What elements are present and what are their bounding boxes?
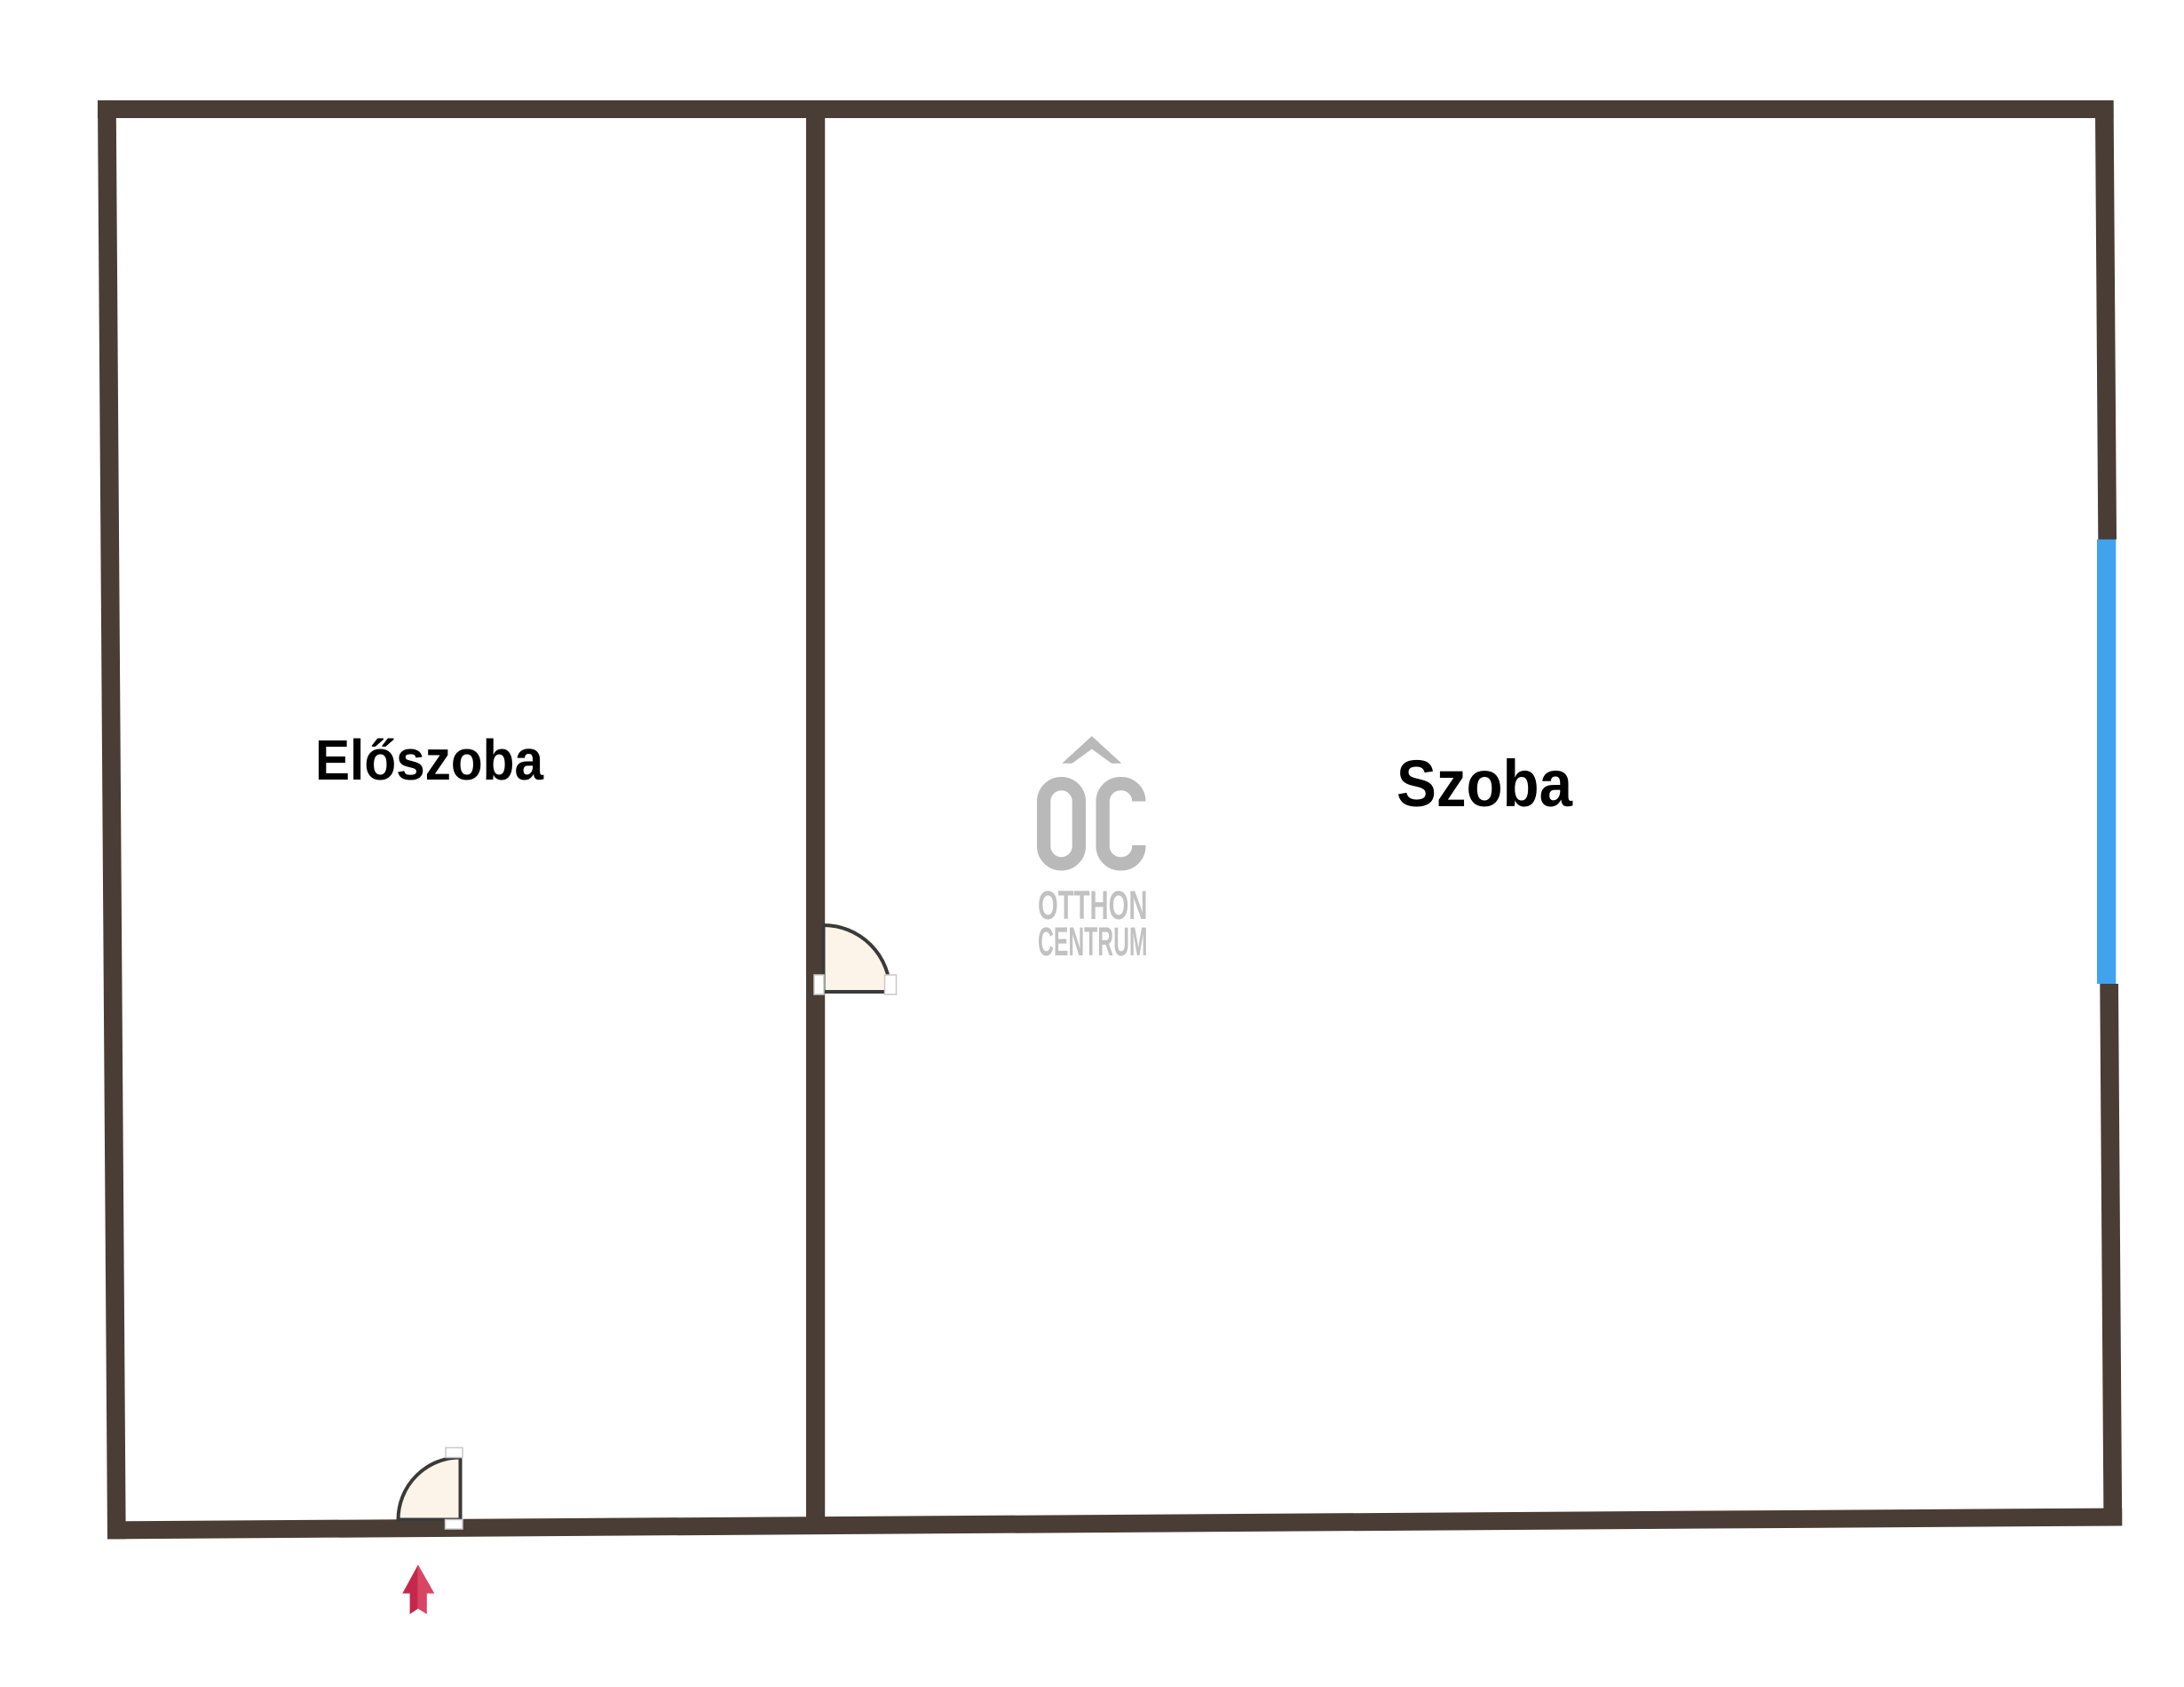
svg-text:CENTRUM: CENTRUM bbox=[1038, 919, 1148, 964]
svg-text:Szoba: Szoba bbox=[1397, 747, 1573, 820]
svg-text:Előszoba: Előszoba bbox=[315, 728, 543, 792]
